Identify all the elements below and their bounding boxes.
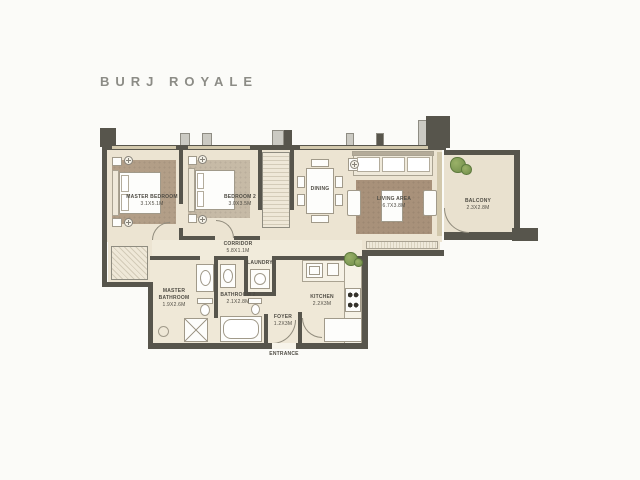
room-name: LIVING AREA <box>377 196 411 202</box>
bath2-sink <box>223 269 233 283</box>
bedroom2-nightstand <box>188 214 197 223</box>
room-name: MASTER BATHROOM <box>159 288 190 301</box>
master-bath-sink <box>200 270 211 286</box>
room-name: ENTRANCE <box>269 351 298 357</box>
room-dimension: 2.1X2.8M <box>216 299 260 306</box>
stove-burners <box>345 288 361 312</box>
bedroom2-headboard <box>188 168 195 212</box>
room-dimension: 3.0X3.5M <box>212 201 268 208</box>
shower-drain-icon <box>158 326 169 337</box>
fridge <box>324 318 362 342</box>
light-fixture-icon <box>350 160 359 169</box>
bathtub-basin <box>223 319 259 339</box>
room-dimension: 2.3X2.8M <box>454 205 502 212</box>
bedroom2-label: BEDROOM 2 3.0X3.5M <box>212 194 268 208</box>
kitchen-plant-icon <box>354 258 363 267</box>
corner-column-topleft <box>100 128 116 147</box>
room-name: DINING <box>311 186 330 192</box>
light-fixture-icon <box>198 215 207 224</box>
balcony-right-wall <box>514 150 520 236</box>
balcony-label: BALCONY 2.3X2.8M <box>454 198 502 212</box>
corner-column-topright <box>426 116 450 148</box>
bath-partition-wall <box>214 260 218 318</box>
living-bottom-wall <box>362 250 444 256</box>
sofa-cushion <box>357 157 380 172</box>
room-name: KITCHEN <box>310 294 334 300</box>
bottom-wall-east <box>296 343 368 349</box>
balcony-top-wall <box>444 150 520 155</box>
foyer-label: FOYER 1.2X3M <box>268 314 298 328</box>
washing-machine-door-icon <box>254 273 266 285</box>
floorplan-page: BURJ ROYALE <box>0 0 640 480</box>
master-bedroom-label: MASTER BEDROOM 3.1X5.1M <box>124 194 180 208</box>
bedroom2-pillow <box>197 191 204 207</box>
armchair <box>423 190 437 216</box>
bathroom2-label: BATHROOM 2 2.1X2.8M <box>216 292 260 306</box>
room-name: FOYER <box>274 314 292 320</box>
master-bathroom-label: MASTER BATHROOM 1.9X2.6M <box>154 288 194 309</box>
entrance-door-opening <box>272 343 296 349</box>
sofa-cushion <box>407 157 430 172</box>
living-area-label: LIVING AREA 6.7X3.8M <box>366 196 422 210</box>
balcony-plant-icon <box>461 164 472 175</box>
master-bath-toilet-bowl <box>200 304 210 316</box>
room-name: MASTER BEDROOM <box>126 194 177 200</box>
dining-label: DINING <box>306 186 334 193</box>
dining-chair <box>335 194 343 206</box>
dining-chair <box>297 194 305 206</box>
bedroom2-nightstand <box>188 156 197 165</box>
master-bed-pillow <box>121 175 129 192</box>
walk-in-closet <box>111 246 148 280</box>
balcony-glass-wall <box>437 152 442 236</box>
window-living <box>300 146 428 149</box>
master-nightstand <box>112 157 122 166</box>
light-fixture-icon <box>198 155 207 164</box>
room-dimension: 1.9X2.6M <box>154 302 194 309</box>
left-wall <box>102 145 107 287</box>
balcony-corner-column <box>512 228 538 241</box>
room-dimension: 6.7X3.8M <box>366 203 422 210</box>
kitchen-sink-basin <box>309 266 320 275</box>
room-name: BEDROOM 2 <box>224 194 256 200</box>
wardrobe-right-wall <box>290 150 294 210</box>
light-fixture-icon <box>124 218 133 227</box>
master-bath-shower <box>184 318 208 342</box>
window-master <box>112 146 176 149</box>
kitchen-right-wall <box>362 256 368 349</box>
lower-left-wall <box>148 282 153 349</box>
master-nightstand <box>112 218 122 227</box>
built-in-wardrobe <box>262 152 290 228</box>
room-name: BALCONY <box>465 198 491 204</box>
kitchen-label: KITCHEN 2.2X3M <box>302 294 342 308</box>
room-name: LAUNDRY <box>247 260 273 266</box>
room-dimension: 3.1X5.1M <box>124 201 180 208</box>
window-bedroom2 <box>188 146 250 149</box>
page-title: BURJ ROYALE <box>100 74 258 89</box>
light-fixture-icon <box>124 156 133 165</box>
master-bed-headboard <box>112 170 119 216</box>
bedroom2-pillow <box>197 173 204 189</box>
room-dimension: 2.2X3M <box>302 301 342 308</box>
room-name: CORRIDOR <box>224 241 253 247</box>
dining-chair <box>335 176 343 188</box>
corridor-label: CORRIDOR 5.8X1.1M <box>212 241 264 255</box>
entrance-label: ENTRANCE <box>264 351 304 358</box>
left-step-wall <box>102 282 152 287</box>
dining-chair <box>297 176 305 188</box>
room-dimension: 5.8X1.1M <box>212 248 264 255</box>
laundry-label: LAUNDRY <box>242 260 278 267</box>
bedroom2-south-wall-a <box>183 236 215 240</box>
living-window-ledge <box>366 241 438 249</box>
bedroom2-south-wall-b <box>234 236 260 240</box>
bottom-wall-west <box>148 343 272 349</box>
armchair <box>347 190 361 216</box>
kitchen-appliance <box>327 263 339 276</box>
balcony-bottom-wall <box>444 232 520 240</box>
facade-column-dark <box>284 130 292 147</box>
room-dimension: 1.2X3M <box>268 321 298 328</box>
dining-chair <box>311 159 329 167</box>
sofa-cushion <box>382 157 405 172</box>
room-name: BATHROOM 2 <box>220 292 255 298</box>
dining-chair <box>311 215 329 223</box>
corridor-south-wall-a <box>150 256 200 260</box>
